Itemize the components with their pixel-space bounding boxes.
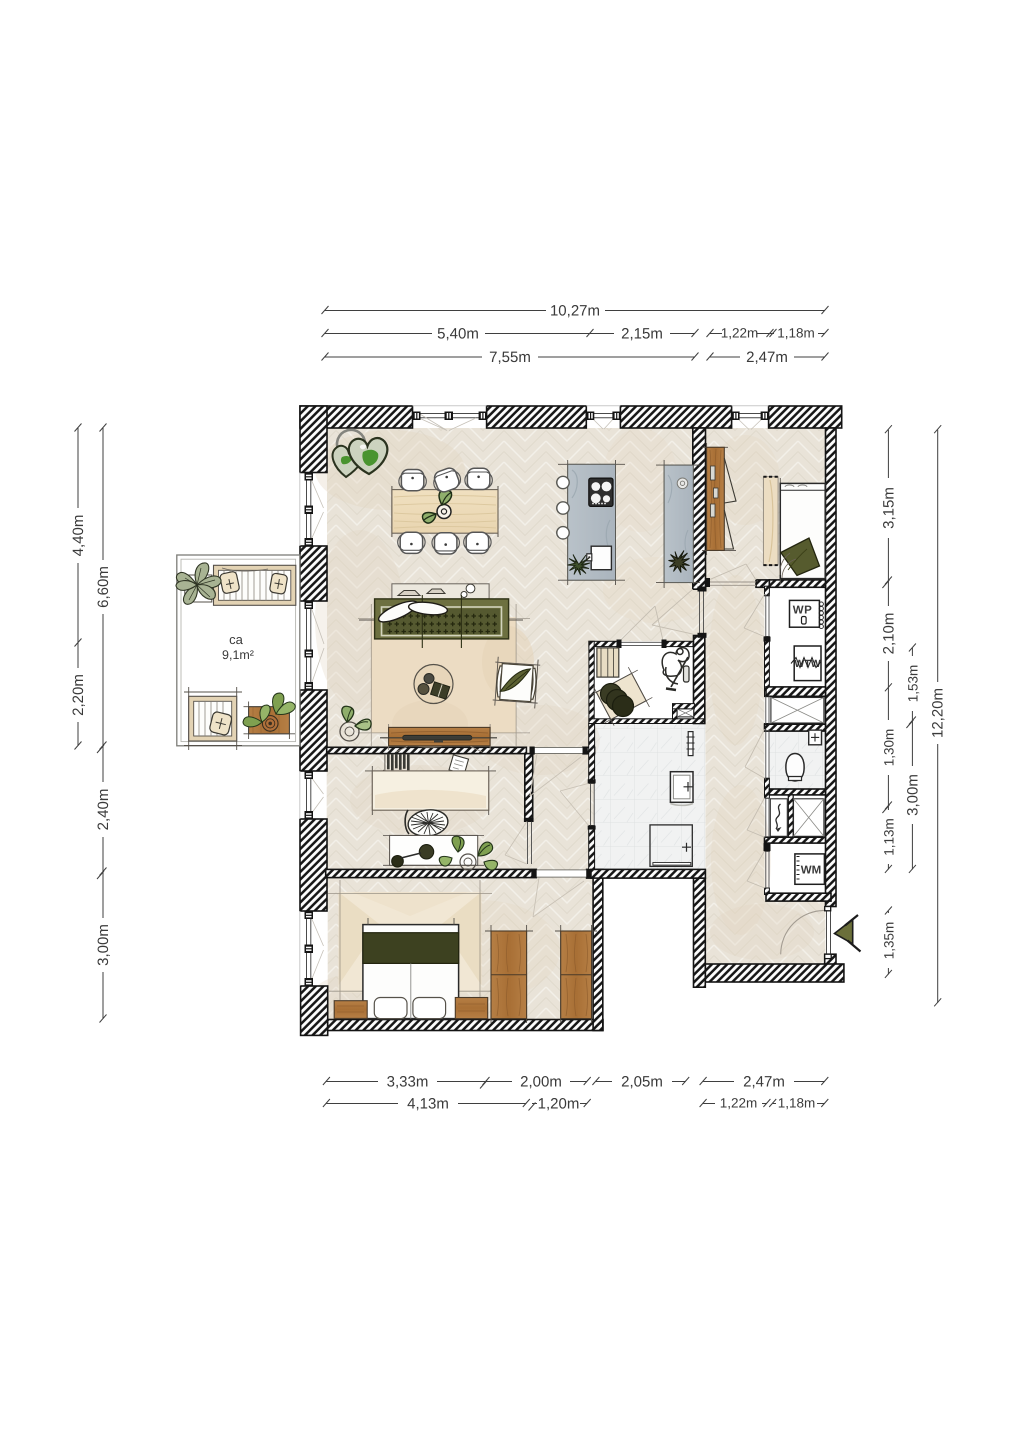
svg-text:2,05m: 2,05m (621, 1074, 663, 1091)
svg-text:1,30m: 1,30m (881, 729, 896, 767)
svg-text:3,00m: 3,00m (95, 924, 112, 966)
svg-text:WP: WP (793, 605, 813, 617)
svg-text:3,15m: 3,15m (880, 487, 897, 529)
svg-text:ca: ca (229, 632, 244, 647)
svg-text:2,00m: 2,00m (520, 1074, 562, 1091)
svg-text:6,60m: 6,60m (95, 566, 112, 608)
svg-text:1,18m: 1,18m (778, 1096, 816, 1111)
svg-text:1,53m: 1,53m (905, 665, 920, 703)
svg-text:3,00m: 3,00m (904, 774, 921, 816)
svg-text:10,27m: 10,27m (550, 303, 600, 320)
svg-text:2,15m: 2,15m (621, 326, 663, 343)
svg-text:1,22m: 1,22m (721, 326, 759, 341)
svg-text:2,47m: 2,47m (743, 1074, 785, 1091)
svg-text:4,13m: 4,13m (407, 1096, 449, 1113)
svg-text:2,10m: 2,10m (880, 613, 897, 655)
svg-text:1,18m: 1,18m (777, 326, 815, 341)
svg-text:12,20m: 12,20m (930, 688, 947, 738)
svg-text:1,35m: 1,35m (881, 922, 896, 960)
svg-text:4,40m: 4,40m (70, 515, 87, 557)
svg-text:1,13m: 1,13m (881, 818, 896, 856)
svg-text:1,20m: 1,20m (538, 1096, 580, 1113)
svg-text:2,40m: 2,40m (95, 789, 112, 831)
svg-text:7,55m: 7,55m (489, 349, 531, 366)
svg-text:WM: WM (801, 865, 821, 877)
svg-text:1,22m: 1,22m (720, 1096, 758, 1111)
svg-text:2,47m: 2,47m (746, 349, 788, 366)
svg-text:3,33m: 3,33m (387, 1074, 429, 1091)
svg-text:2,20m: 2,20m (70, 674, 87, 716)
svg-text:5,40m: 5,40m (437, 326, 479, 343)
svg-text:9,1m²: 9,1m² (222, 648, 254, 662)
